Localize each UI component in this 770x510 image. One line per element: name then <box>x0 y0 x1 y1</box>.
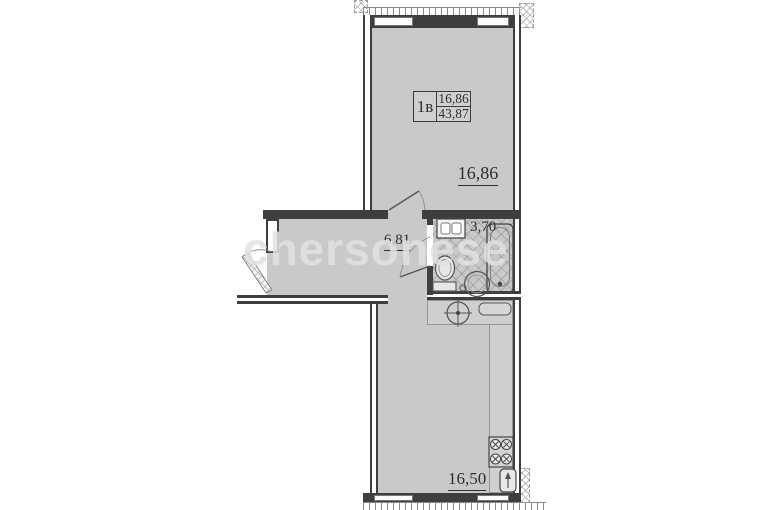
bathroom-left-wall-stub <box>427 219 433 225</box>
living-bathroom-wall <box>422 210 521 219</box>
unit-living-area: 16,86 <box>437 92 470 107</box>
living-window-left <box>374 17 413 26</box>
unit-info-card: 1в 16,86 43,87 <box>413 91 471 122</box>
top-right-hatch-block <box>519 3 534 28</box>
floor-plan: 1в 16,86 43,87 16,86 3,70 6,81 16,50 che… <box>0 0 770 510</box>
hallway-area-label: 6,81 <box>384 232 410 251</box>
kitchen-area-label: 16,50 <box>448 469 486 491</box>
kitchen-window-left <box>374 495 413 501</box>
right-exterior-wall <box>513 15 521 502</box>
bathroom-area-label: 3,70 <box>470 219 496 236</box>
bottom-facade-hatch <box>363 502 546 510</box>
top-facade-hatch <box>363 7 521 15</box>
unit-type-label: 1в <box>414 92 437 121</box>
kitchen-counter-top <box>427 300 513 325</box>
entrance-pillar <box>266 219 279 253</box>
top-left-hatch-block <box>354 0 368 13</box>
hallway-top-wall <box>263 210 388 219</box>
living-window-right <box>477 17 509 26</box>
living-area-label: 16,86 <box>447 163 509 186</box>
living-left-wall <box>363 15 372 219</box>
hallway-floor <box>267 219 427 295</box>
kitchen-left-wall <box>370 299 378 502</box>
kitchen-window-right <box>477 495 509 501</box>
unit-total-area: 43,87 <box>437 107 470 121</box>
bathroom-bottom-wall <box>427 291 521 300</box>
living-door-opening <box>388 210 422 219</box>
kitchen-counter-right <box>489 324 513 493</box>
hallway-bottom-wall <box>237 295 388 304</box>
bathroom-left-wall <box>427 266 433 295</box>
